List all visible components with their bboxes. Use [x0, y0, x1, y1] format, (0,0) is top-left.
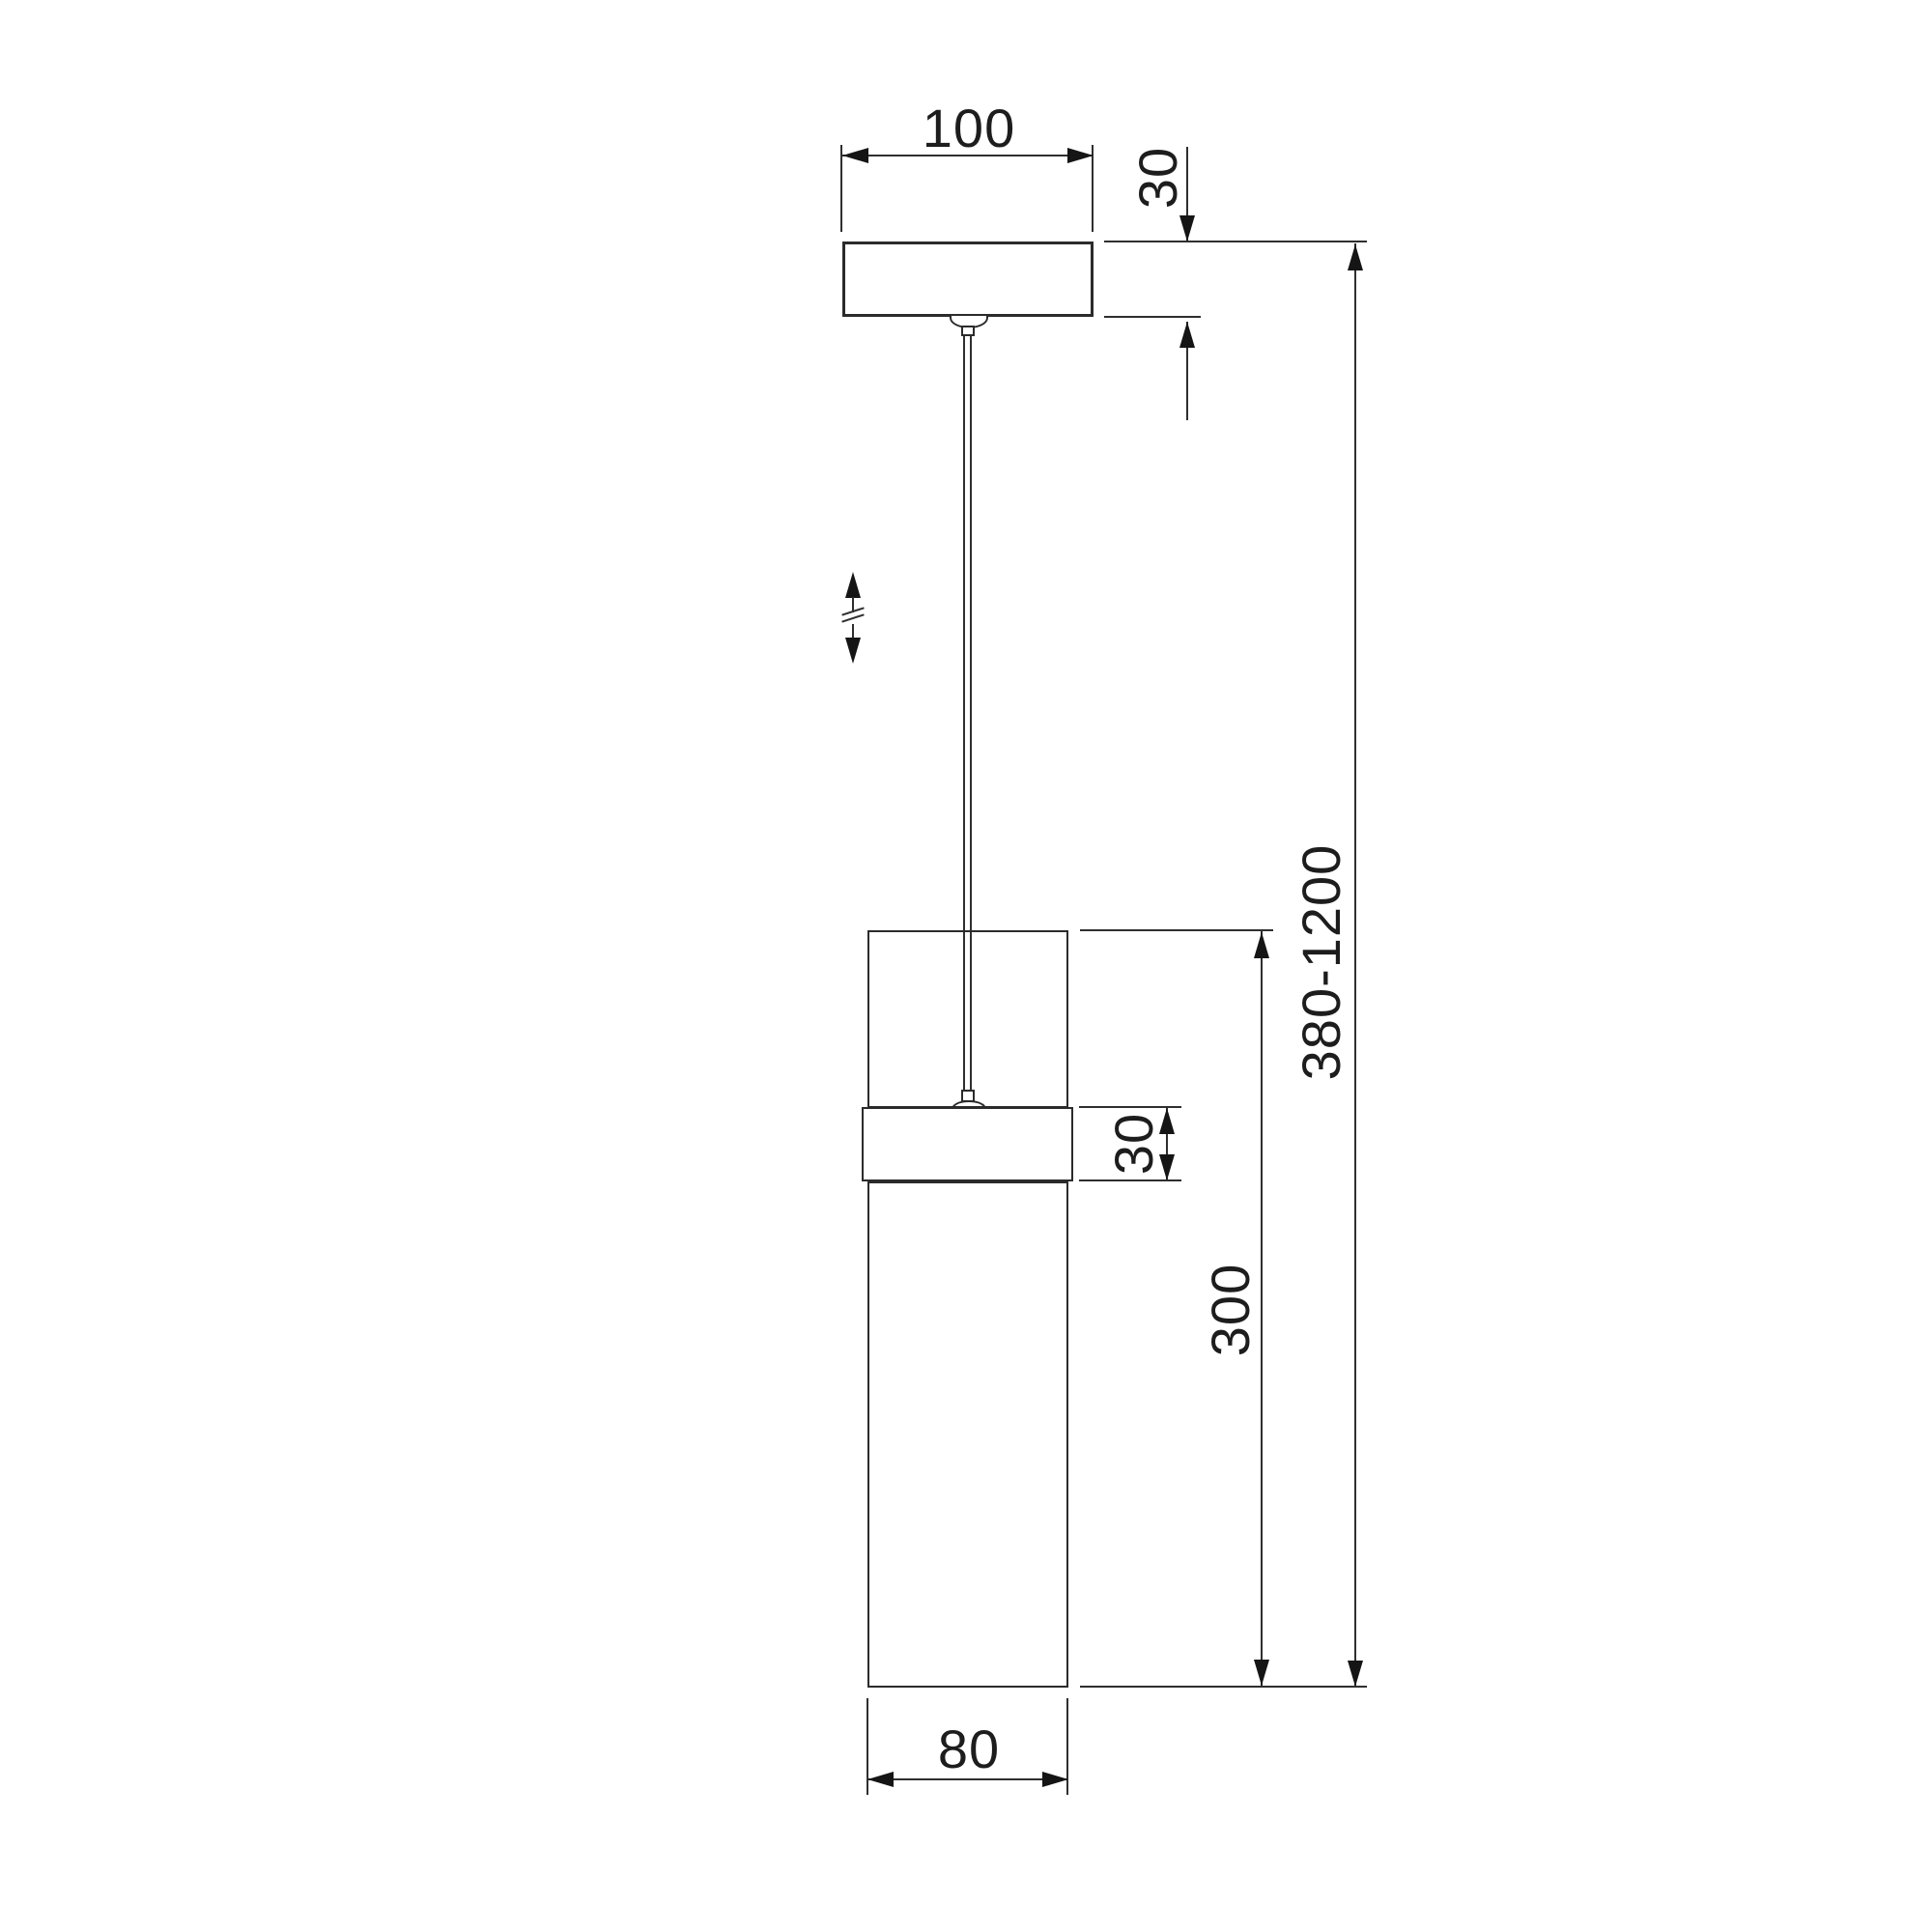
- arrow-down-icon: [1254, 1660, 1269, 1686]
- dim-label-ring-height: 30: [1107, 1113, 1161, 1175]
- adjust-height-arrow-up-icon: [845, 572, 861, 598]
- dim-line-overall-height: [1354, 243, 1356, 1688]
- shade-cylinder-outline: [867, 1181, 1068, 1688]
- arrow-down-icon: [1179, 215, 1195, 241]
- extension-line-canopy-bottom-level: [1104, 316, 1201, 318]
- arrow-up-icon: [1348, 244, 1363, 270]
- technical-drawing-canvas: 100 30 380-1200 300 30 80: [0, 0, 1932, 1932]
- dim-label-overall-height: 380-1200: [1294, 844, 1349, 1081]
- break-mark-icon: [841, 613, 864, 622]
- arrow-up-icon: [1179, 322, 1195, 348]
- ceiling-canopy-outline: [842, 241, 1094, 317]
- arrow-left-icon: [842, 148, 868, 163]
- arrow-left-icon: [867, 1772, 894, 1787]
- glass-shade-upper-outline: [867, 930, 1068, 1108]
- mounting-ring-outline: [862, 1107, 1073, 1181]
- dim-label-canopy-width: 100: [923, 101, 1015, 156]
- arrow-right-icon: [1042, 1772, 1068, 1787]
- extension-line-shade-top-level: [1080, 929, 1273, 931]
- dim-line-shade-height: [1261, 930, 1263, 1688]
- dim-label-shade-height: 300: [1204, 1264, 1258, 1356]
- arrow-up-icon: [1254, 932, 1269, 958]
- dim-label-shade-diameter: 80: [938, 1722, 1000, 1776]
- arrow-down-icon: [1348, 1661, 1363, 1687]
- dim-label-canopy-height: 30: [1131, 147, 1185, 209]
- extension-line-canopy-top-level: [1104, 241, 1367, 242]
- extension-line-shade-bottom-level: [1080, 1686, 1367, 1688]
- adjust-height-arrow-down-icon: [845, 638, 861, 664]
- arrow-right-icon: [1067, 148, 1094, 163]
